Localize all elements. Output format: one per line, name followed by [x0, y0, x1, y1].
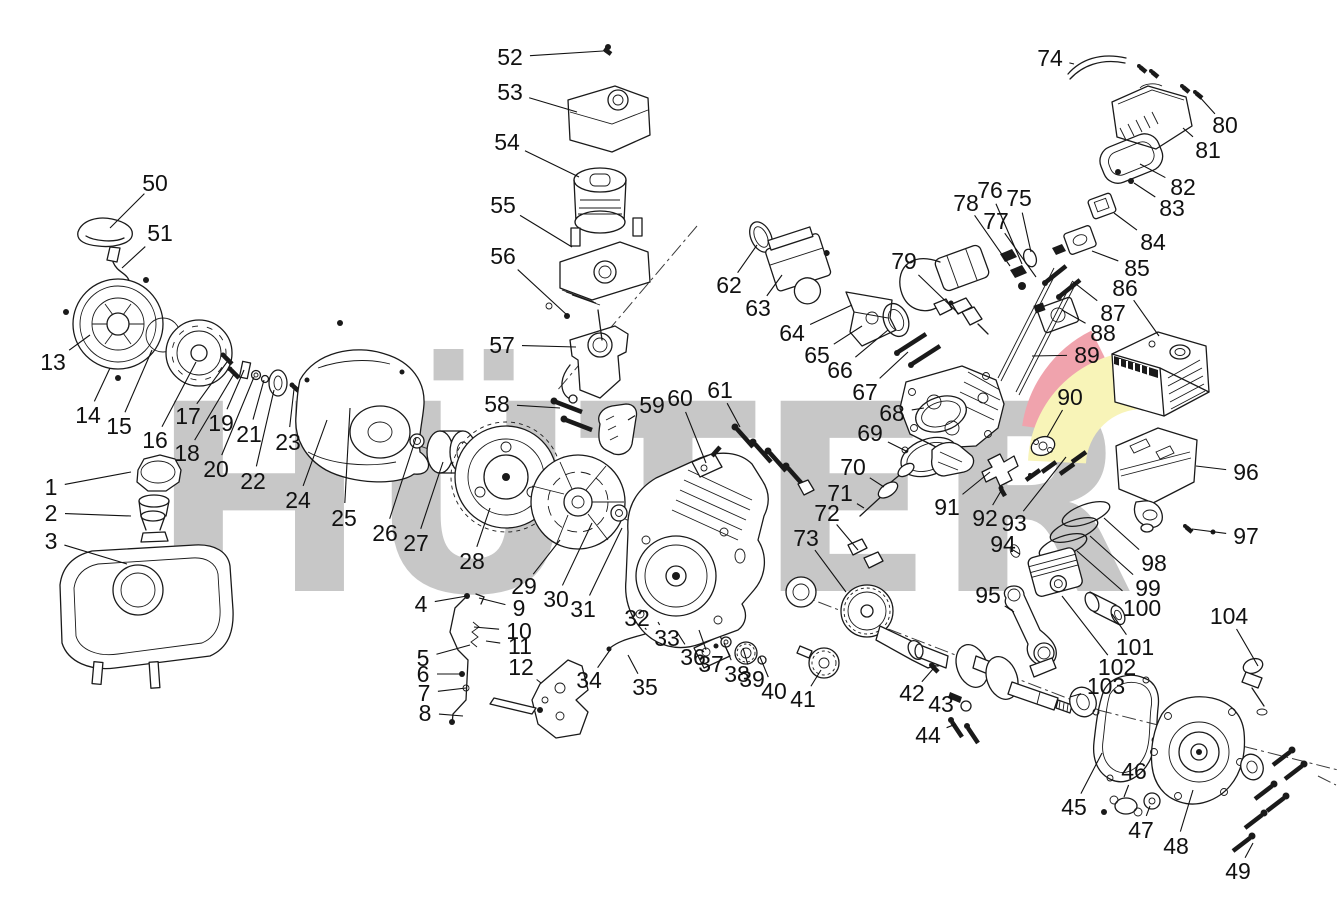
muffler [1112, 332, 1209, 416]
callout-34: 34 [576, 667, 602, 693]
callout-90: 90 [1057, 384, 1083, 410]
callout-31: 31 [570, 596, 596, 622]
recoil-starter [63, 277, 232, 386]
callout-55: 55 [490, 192, 516, 218]
leader-line-75 [1022, 213, 1031, 252]
leader-line-96 [1196, 466, 1226, 470]
callout-66: 66 [827, 357, 853, 383]
callout-18: 18 [174, 440, 200, 466]
callout-61: 61 [707, 377, 733, 403]
parts-diagram-page: HÜTER [0, 0, 1339, 912]
callout-56: 56 [490, 243, 516, 269]
callout-98: 98 [1141, 550, 1167, 576]
callout-26: 26 [372, 520, 398, 546]
fuel-filter [139, 495, 169, 542]
callout-21: 21 [236, 421, 262, 447]
callout-1: 1 [45, 474, 58, 500]
callout-84: 84 [1140, 229, 1166, 255]
callout-75: 75 [1006, 185, 1032, 211]
crankcase-cover [1151, 697, 1267, 804]
callout-33: 33 [654, 625, 680, 651]
callout-25: 25 [331, 505, 357, 531]
callout-80: 80 [1212, 112, 1238, 138]
callout-81: 81 [1195, 137, 1221, 163]
callout-46: 46 [1121, 758, 1147, 784]
callout-57: 57 [489, 332, 515, 358]
leader-line-52 [530, 51, 603, 56]
callout-68: 68 [879, 400, 905, 426]
leader-line-49 [1245, 843, 1253, 858]
callout-63: 63 [745, 295, 771, 321]
callout-95: 95 [975, 582, 1001, 608]
leader-line-97 [1192, 529, 1226, 533]
callout-73: 73 [793, 525, 819, 551]
callout-49: 49 [1225, 858, 1251, 884]
leader-line-89 [1032, 355, 1067, 356]
callout-103: 103 [1087, 673, 1125, 699]
leader-line-14 [94, 368, 110, 401]
air-box [1112, 64, 1202, 149]
fuel-tank [60, 545, 233, 688]
leader-line-87 [1072, 281, 1097, 301]
callout-104: 104 [1210, 603, 1249, 629]
leader-line-83 [1134, 183, 1155, 197]
callout-42: 42 [899, 680, 925, 706]
callout-96: 96 [1233, 459, 1259, 485]
callout-23: 23 [275, 429, 301, 455]
leader-line-85 [1092, 251, 1118, 261]
callout-72: 72 [814, 500, 840, 526]
callout-86: 86 [1112, 275, 1138, 301]
callout-52: 52 [497, 44, 523, 70]
callout-15: 15 [106, 413, 132, 439]
leader-line-12 [537, 679, 541, 683]
exploded-parts-diagram: HÜTER [0, 0, 1339, 912]
callout-97: 97 [1233, 523, 1259, 549]
leader-line-45 [1081, 753, 1102, 794]
governor-rod [1068, 56, 1126, 79]
callout-65: 65 [804, 342, 830, 368]
oil-pump-gear [797, 646, 839, 678]
callout-67: 67 [852, 379, 878, 405]
callout-64: 64 [779, 320, 805, 346]
callout-51: 51 [147, 220, 173, 246]
callout-12: 12 [508, 654, 534, 680]
leader-line-35 [628, 655, 638, 674]
callout-48: 48 [1163, 833, 1189, 859]
callout-35: 35 [632, 674, 658, 700]
callout-20: 20 [203, 456, 229, 482]
callout-76: 76 [977, 177, 1003, 203]
callout-78: 78 [953, 190, 979, 216]
callout-41: 41 [790, 686, 816, 712]
callout-16: 16 [142, 427, 168, 453]
leader-line-54 [525, 151, 579, 177]
callout-27: 27 [403, 530, 429, 556]
leader-line-51 [122, 247, 145, 268]
callout-22: 22 [240, 468, 266, 494]
carburetor [745, 218, 940, 368]
control-bracket [490, 660, 588, 738]
callout-89: 89 [1074, 342, 1100, 368]
callout-53: 53 [497, 79, 523, 105]
callout-83: 83 [1159, 195, 1185, 221]
callout-40: 40 [761, 678, 787, 704]
callout-13: 13 [40, 349, 66, 375]
leader-line-7 [438, 688, 466, 691]
dipstick [1241, 656, 1267, 715]
leader-line-84 [1114, 213, 1137, 230]
callout-37: 37 [698, 651, 724, 677]
callout-30: 30 [543, 586, 569, 612]
callout-58: 58 [484, 391, 510, 417]
leader-line-46 [1124, 785, 1129, 797]
leader-line-82 [1140, 164, 1165, 178]
callout-29: 29 [511, 573, 537, 599]
spark-plug [949, 298, 989, 334]
callout-8: 8 [419, 700, 432, 726]
leader-line-8 [439, 714, 463, 716]
intake-spacers [1052, 192, 1117, 255]
air-filter-cover [568, 44, 650, 152]
callout-17: 17 [175, 403, 201, 429]
callout-28: 28 [459, 548, 485, 574]
callout-3: 3 [45, 528, 58, 554]
callout-32: 32 [624, 605, 650, 631]
leader-line-80 [1197, 94, 1215, 114]
callout-43: 43 [928, 691, 954, 717]
leader-line-57 [522, 346, 576, 347]
callout-4: 4 [415, 591, 428, 617]
callout-47: 47 [1128, 817, 1154, 843]
oil-drain [1101, 793, 1160, 816]
callout-77: 77 [983, 208, 1009, 234]
air-filter-element [574, 168, 626, 233]
callout-69: 69 [857, 420, 883, 446]
leader-line-62 [738, 245, 757, 273]
callout-62: 62 [716, 272, 742, 298]
callout-19: 19 [208, 410, 234, 436]
callout-59: 59 [639, 392, 665, 418]
leader-line-55 [520, 215, 572, 247]
callout-45: 45 [1061, 794, 1087, 820]
callout-54: 54 [494, 129, 520, 155]
callout-24: 24 [285, 487, 311, 513]
leader-line-2 [65, 514, 131, 516]
callout-14: 14 [75, 402, 101, 428]
callout-91: 91 [934, 494, 960, 520]
callout-2: 2 [45, 500, 58, 526]
callout-74: 74 [1037, 45, 1063, 71]
callout-70: 70 [840, 454, 866, 480]
callout-60: 60 [667, 385, 693, 411]
leader-line-86 [1134, 300, 1159, 336]
callout-44: 44 [915, 722, 941, 748]
leader-line-50 [110, 194, 144, 228]
callout-92: 92 [972, 505, 998, 531]
callout-79: 79 [891, 248, 917, 274]
callout-100: 100 [1123, 595, 1161, 621]
leader-line-1 [65, 472, 131, 484]
callout-50: 50 [142, 170, 168, 196]
leader-line-64 [810, 305, 852, 325]
leader-line-74 [1069, 63, 1074, 64]
callout-94: 94 [990, 531, 1016, 557]
